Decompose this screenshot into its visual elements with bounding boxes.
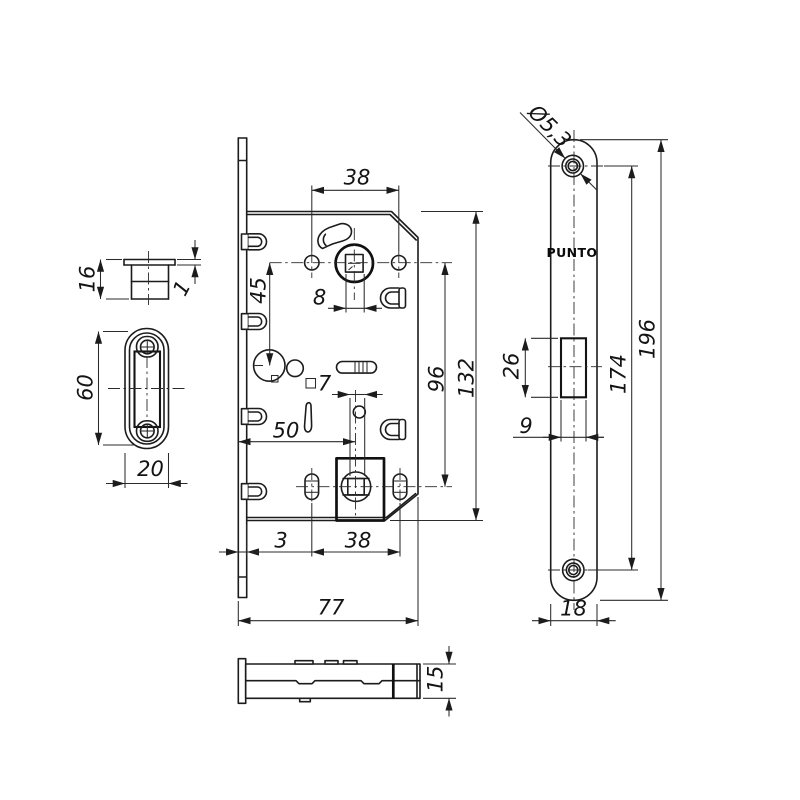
dim-latch-height: 26 — [500, 353, 524, 380]
dim-faceplate-thickness: 3 — [274, 529, 287, 553]
latch-window — [561, 338, 586, 397]
dim-strike-width: 20 — [137, 457, 164, 481]
dim-catch-height: 16 — [76, 266, 100, 293]
dim-strike-height: 60 — [74, 374, 98, 401]
faceplate-strip — [238, 138, 246, 598]
dim-wc-square: 7 — [318, 372, 332, 396]
lock-technical-drawing: 16 1 60 20 — [0, 0, 800, 800]
view-strike-plate: 60 20 — [74, 329, 188, 489]
view-lock-body-front: 38 45 8 7 50 96 132 — [219, 138, 483, 626]
dim-faceplate-height: 196 — [636, 319, 660, 359]
pivot-hole — [287, 360, 304, 377]
slider-slot — [337, 362, 377, 374]
teardrop-slot — [305, 403, 312, 432]
dim-body-width: 77 — [318, 596, 345, 620]
screw-hole-bottom — [548, 559, 590, 580]
dim-centers-span: 96 — [425, 366, 449, 393]
spring-clip-lower — [381, 420, 406, 440]
faceplate-edge — [238, 659, 245, 704]
dim-bottom-holes-span: 38 — [345, 529, 372, 553]
dim-body-height: 132 — [455, 358, 479, 398]
dim-top-holes-span: 38 — [344, 166, 371, 190]
dim-wc-offset: 45 — [247, 277, 271, 304]
dim-faceplate-width: 18 — [560, 597, 587, 621]
dim-screw-centers: 174 — [607, 354, 631, 394]
dim-backset: 50 — [273, 419, 300, 443]
view-lock-body-side: 15 — [238, 646, 456, 717]
screw-hole-top — [548, 155, 604, 176]
dim-spindle-square: 8 — [313, 286, 326, 310]
view-catch-cross-section: 16 1 — [76, 240, 202, 305]
dim-latch-width: 9 — [519, 414, 532, 438]
brand-logo: PUNTO — [547, 245, 598, 260]
square-symbol — [306, 379, 316, 389]
spring-clip-upper — [381, 288, 406, 308]
dim-body-thickness: 15 — [424, 666, 448, 693]
page: 16 1 60 20 — [0, 0, 800, 800]
magnet-housing — [337, 458, 385, 520]
view-faceplate-front: Ø5,3 PUNTO 26 9 174 196 — [500, 99, 669, 626]
dim-catch-lip: 1 — [168, 277, 195, 300]
dim-screw-hole-diameter: Ø5,3 — [523, 99, 576, 152]
curved-slot — [318, 224, 352, 249]
